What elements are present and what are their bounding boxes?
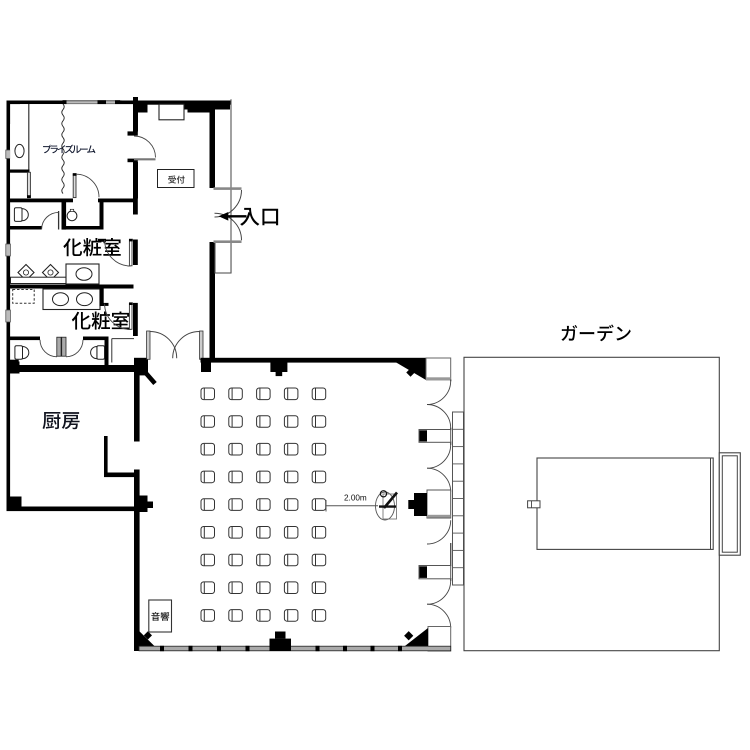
svg-text:2.00m: 2.00m xyxy=(344,494,367,503)
